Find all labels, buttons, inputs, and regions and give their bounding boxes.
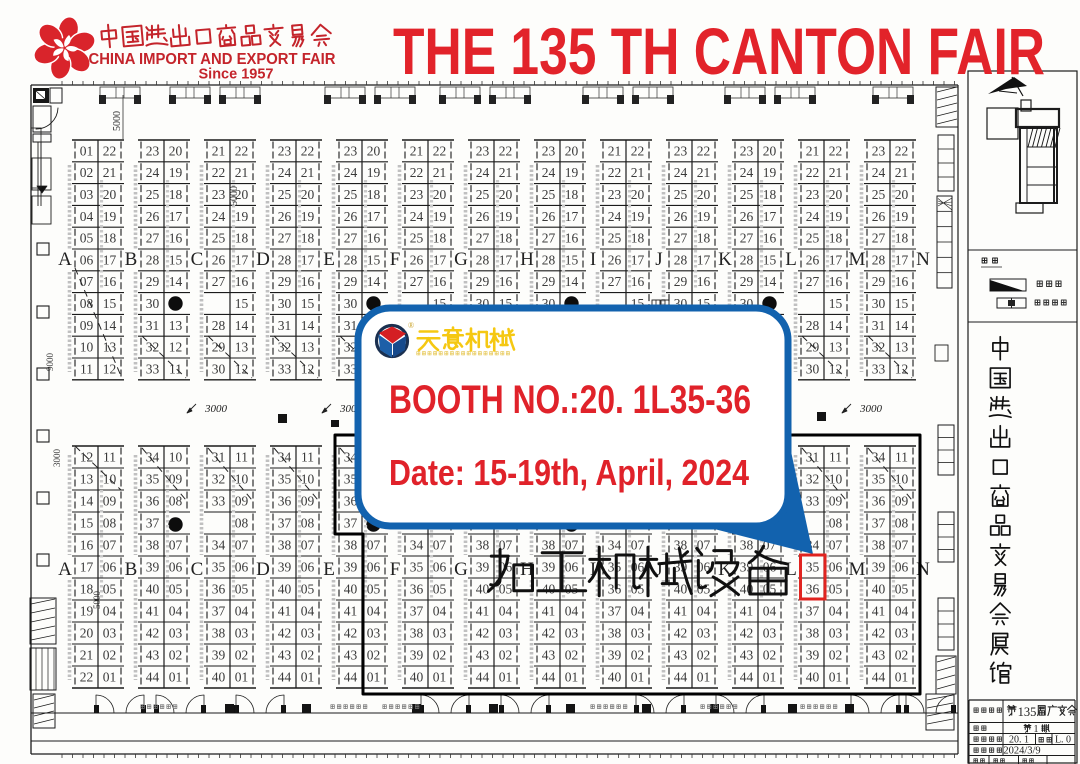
svg-text:24: 24 xyxy=(476,165,490,180)
svg-text:33: 33 xyxy=(146,361,160,376)
svg-text:20: 20 xyxy=(697,187,711,202)
svg-text:E: E xyxy=(323,249,335,270)
svg-text:40: 40 xyxy=(806,670,820,685)
svg-text:08: 08 xyxy=(80,296,94,311)
svg-text:21: 21 xyxy=(80,648,94,663)
svg-text:42: 42 xyxy=(344,626,358,641)
svg-text:25: 25 xyxy=(410,231,424,246)
svg-text:28: 28 xyxy=(278,252,292,267)
svg-text:44: 44 xyxy=(344,670,358,685)
svg-text:09: 09 xyxy=(301,494,315,509)
svg-text:25: 25 xyxy=(146,187,160,202)
svg-text:38: 38 xyxy=(608,626,622,641)
svg-text:23: 23 xyxy=(476,143,490,158)
svg-text:38: 38 xyxy=(212,626,226,641)
svg-text:01: 01 xyxy=(80,143,94,158)
svg-text:24: 24 xyxy=(542,165,556,180)
svg-text:10: 10 xyxy=(829,472,843,487)
svg-text:01: 01 xyxy=(301,670,315,685)
svg-text:30: 30 xyxy=(212,361,226,376)
svg-text:29: 29 xyxy=(344,274,358,289)
svg-text:B: B xyxy=(125,249,138,270)
svg-text:21: 21 xyxy=(212,143,226,158)
svg-text:39: 39 xyxy=(872,560,886,575)
svg-text:09: 09 xyxy=(895,494,909,509)
svg-text:42: 42 xyxy=(542,626,556,641)
svg-text:09: 09 xyxy=(829,494,843,509)
svg-text:14: 14 xyxy=(103,318,117,333)
svg-text:06: 06 xyxy=(433,560,447,575)
svg-text:31: 31 xyxy=(344,318,358,333)
svg-text:27: 27 xyxy=(806,274,820,289)
svg-text:06: 06 xyxy=(235,560,249,575)
svg-text:34: 34 xyxy=(212,538,226,553)
svg-text:25: 25 xyxy=(806,231,820,246)
svg-text:21: 21 xyxy=(608,143,622,158)
svg-text:44: 44 xyxy=(278,670,292,685)
svg-text:44: 44 xyxy=(542,670,556,685)
svg-text:17: 17 xyxy=(565,209,579,224)
svg-text:06: 06 xyxy=(895,560,909,575)
svg-text:27: 27 xyxy=(410,274,424,289)
svg-text:39: 39 xyxy=(344,560,358,575)
svg-text:15: 15 xyxy=(895,296,909,311)
svg-text:17: 17 xyxy=(631,252,645,267)
svg-text:C: C xyxy=(191,249,204,270)
svg-text:18: 18 xyxy=(499,231,513,246)
svg-text:05: 05 xyxy=(433,582,447,597)
svg-text:24: 24 xyxy=(872,165,886,180)
svg-text:41: 41 xyxy=(740,604,754,619)
svg-text:01: 01 xyxy=(499,670,513,685)
svg-text:31: 31 xyxy=(278,318,292,333)
svg-text:07: 07 xyxy=(565,538,579,553)
svg-text:29: 29 xyxy=(740,274,754,289)
svg-text:20. 1: 20. 1 xyxy=(1009,735,1029,746)
svg-text:21: 21 xyxy=(235,165,249,180)
svg-text:L: L xyxy=(785,249,797,270)
svg-text:L. 0: L. 0 xyxy=(1055,735,1071,746)
svg-text:15: 15 xyxy=(565,252,579,267)
svg-text:39: 39 xyxy=(278,560,292,575)
svg-text:03: 03 xyxy=(80,187,94,202)
svg-text:03: 03 xyxy=(631,626,645,641)
svg-text:3000: 3000 xyxy=(204,403,228,415)
svg-text:04: 04 xyxy=(103,604,117,619)
svg-text:26: 26 xyxy=(278,209,292,224)
svg-text:G: G xyxy=(454,249,468,270)
svg-text:K: K xyxy=(718,249,732,270)
svg-text:14: 14 xyxy=(829,318,843,333)
svg-text:17: 17 xyxy=(235,252,249,267)
svg-text:42: 42 xyxy=(674,626,688,641)
svg-text:43: 43 xyxy=(344,648,358,663)
svg-text:43: 43 xyxy=(740,648,754,663)
svg-text:13: 13 xyxy=(895,340,909,355)
svg-text:26: 26 xyxy=(542,209,556,224)
svg-text:23: 23 xyxy=(608,187,622,202)
svg-text:06: 06 xyxy=(301,560,315,575)
svg-text:05: 05 xyxy=(169,582,183,597)
svg-text:18: 18 xyxy=(301,231,315,246)
svg-text:08: 08 xyxy=(895,516,909,531)
svg-text:37: 37 xyxy=(410,604,424,619)
svg-text:14: 14 xyxy=(169,274,183,289)
svg-text:43: 43 xyxy=(872,648,886,663)
svg-text:25: 25 xyxy=(872,187,886,202)
svg-text:01: 01 xyxy=(367,670,381,685)
svg-text:36: 36 xyxy=(410,582,424,597)
svg-text:15: 15 xyxy=(103,296,117,311)
svg-text:24: 24 xyxy=(212,209,226,224)
svg-text:43: 43 xyxy=(674,648,688,663)
svg-text:21: 21 xyxy=(103,165,117,180)
svg-text:36: 36 xyxy=(146,494,160,509)
svg-text:02: 02 xyxy=(565,648,579,663)
svg-text:09: 09 xyxy=(103,494,117,509)
svg-text:13: 13 xyxy=(235,340,249,355)
svg-text:A: A xyxy=(58,559,72,580)
svg-text:44: 44 xyxy=(674,670,688,685)
svg-text:14: 14 xyxy=(895,318,909,333)
svg-text:07: 07 xyxy=(631,538,645,553)
svg-text:39: 39 xyxy=(146,560,160,575)
svg-text:02: 02 xyxy=(829,648,843,663)
svg-text:19: 19 xyxy=(301,209,315,224)
svg-text:35: 35 xyxy=(278,472,292,487)
svg-text:16: 16 xyxy=(697,274,711,289)
svg-text:03: 03 xyxy=(829,626,843,641)
svg-text:27: 27 xyxy=(146,231,160,246)
svg-text:F: F xyxy=(390,249,401,270)
svg-text:32: 32 xyxy=(872,340,886,355)
svg-text:07: 07 xyxy=(829,538,843,553)
svg-text:14: 14 xyxy=(235,318,249,333)
svg-text:15: 15 xyxy=(169,252,183,267)
svg-text:18: 18 xyxy=(895,231,909,246)
svg-text:29: 29 xyxy=(542,274,556,289)
svg-text:20: 20 xyxy=(499,187,513,202)
svg-text:30: 30 xyxy=(344,296,358,311)
svg-text:24: 24 xyxy=(344,165,358,180)
svg-text:19: 19 xyxy=(169,165,183,180)
svg-text:04: 04 xyxy=(169,604,183,619)
svg-text:2024/3/9: 2024/3/9 xyxy=(1003,746,1040,757)
svg-text:14: 14 xyxy=(80,494,94,509)
svg-text:33: 33 xyxy=(212,494,226,509)
svg-text:06: 06 xyxy=(367,560,381,575)
svg-text:20: 20 xyxy=(565,143,579,158)
svg-text:04: 04 xyxy=(895,604,909,619)
svg-text:15: 15 xyxy=(367,252,381,267)
svg-text:28: 28 xyxy=(872,252,886,267)
svg-text:17: 17 xyxy=(80,560,94,575)
svg-text:17: 17 xyxy=(169,209,183,224)
svg-text:11: 11 xyxy=(80,361,93,376)
svg-text:34: 34 xyxy=(872,450,886,465)
svg-text:37: 37 xyxy=(608,604,622,619)
svg-text:04: 04 xyxy=(80,209,94,224)
svg-text:25: 25 xyxy=(278,187,292,202)
svg-text:32: 32 xyxy=(278,340,292,355)
svg-text:26: 26 xyxy=(410,252,424,267)
svg-text:22: 22 xyxy=(499,143,513,158)
svg-text:31: 31 xyxy=(146,318,160,333)
svg-text:13: 13 xyxy=(829,340,843,355)
svg-text:08: 08 xyxy=(301,516,315,531)
svg-text:08: 08 xyxy=(235,516,249,531)
svg-text:30: 30 xyxy=(278,296,292,311)
svg-text:28: 28 xyxy=(542,252,556,267)
svg-text:32: 32 xyxy=(146,340,160,355)
svg-text:24: 24 xyxy=(608,209,622,224)
svg-text:01: 01 xyxy=(829,670,843,685)
svg-text:21: 21 xyxy=(697,165,711,180)
svg-text:19: 19 xyxy=(829,209,843,224)
svg-text:33: 33 xyxy=(872,361,886,376)
svg-text:28: 28 xyxy=(740,252,754,267)
svg-text:06: 06 xyxy=(565,560,579,575)
svg-text:19: 19 xyxy=(235,209,249,224)
svg-text:23: 23 xyxy=(344,143,358,158)
svg-text:D: D xyxy=(256,249,270,270)
svg-text:11: 11 xyxy=(301,450,314,465)
svg-text:13: 13 xyxy=(169,318,183,333)
svg-text:11: 11 xyxy=(103,450,116,465)
svg-text:19: 19 xyxy=(631,209,645,224)
svg-text:07: 07 xyxy=(169,538,183,553)
svg-text:05: 05 xyxy=(895,582,909,597)
svg-text:22: 22 xyxy=(410,165,424,180)
svg-text:23: 23 xyxy=(212,187,226,202)
svg-text:21: 21 xyxy=(806,143,820,158)
svg-text:20: 20 xyxy=(763,143,777,158)
svg-text:36: 36 xyxy=(278,494,292,509)
svg-text:25: 25 xyxy=(212,231,226,246)
svg-text:26: 26 xyxy=(674,209,688,224)
svg-text:25: 25 xyxy=(740,187,754,202)
svg-text:16: 16 xyxy=(895,274,909,289)
svg-text:04: 04 xyxy=(631,604,645,619)
svg-text:41: 41 xyxy=(674,604,688,619)
svg-text:22: 22 xyxy=(80,670,94,685)
svg-text:N: N xyxy=(916,559,930,580)
svg-text:38: 38 xyxy=(410,626,424,641)
svg-text:07: 07 xyxy=(895,538,909,553)
svg-text:37: 37 xyxy=(146,516,160,531)
svg-text:16: 16 xyxy=(565,231,579,246)
svg-text:37: 37 xyxy=(872,516,886,531)
svg-text:33: 33 xyxy=(806,494,820,509)
svg-text:Since 1957: Since 1957 xyxy=(199,67,274,83)
svg-text:13: 13 xyxy=(103,340,117,355)
svg-text:24: 24 xyxy=(740,165,754,180)
svg-text:03: 03 xyxy=(103,626,117,641)
svg-text:41: 41 xyxy=(542,604,556,619)
svg-text:04: 04 xyxy=(697,604,711,619)
svg-text:26: 26 xyxy=(146,209,160,224)
svg-text:18: 18 xyxy=(631,231,645,246)
svg-text:35: 35 xyxy=(146,472,160,487)
svg-text:40: 40 xyxy=(542,582,556,597)
svg-text:D: D xyxy=(256,559,270,580)
svg-text:09: 09 xyxy=(235,494,249,509)
svg-text:33: 33 xyxy=(278,361,292,376)
svg-text:28: 28 xyxy=(476,252,490,267)
svg-text:12: 12 xyxy=(169,340,183,355)
svg-text:27: 27 xyxy=(278,231,292,246)
svg-text:21: 21 xyxy=(301,165,315,180)
svg-text:31: 31 xyxy=(212,450,226,465)
svg-text:43: 43 xyxy=(146,648,160,663)
svg-text:20: 20 xyxy=(80,626,94,641)
svg-text:03: 03 xyxy=(301,626,315,641)
svg-text:03: 03 xyxy=(565,626,579,641)
svg-text:28: 28 xyxy=(344,252,358,267)
svg-text:25: 25 xyxy=(476,187,490,202)
svg-text:05: 05 xyxy=(235,582,249,597)
svg-text:41: 41 xyxy=(344,604,358,619)
svg-text:14: 14 xyxy=(301,318,315,333)
svg-text:C: C xyxy=(191,559,204,580)
svg-text:17: 17 xyxy=(763,209,777,224)
svg-text:26: 26 xyxy=(740,209,754,224)
svg-text:44: 44 xyxy=(476,670,490,685)
svg-text:34: 34 xyxy=(410,538,424,553)
svg-text:38: 38 xyxy=(740,538,754,553)
svg-text:38: 38 xyxy=(344,538,358,553)
svg-text:06: 06 xyxy=(103,560,117,575)
svg-text:20: 20 xyxy=(895,187,909,202)
svg-text:21: 21 xyxy=(631,165,645,180)
svg-text:07: 07 xyxy=(301,538,315,553)
svg-text:25: 25 xyxy=(608,231,622,246)
svg-text:01: 01 xyxy=(895,670,909,685)
svg-text:01: 01 xyxy=(235,670,249,685)
svg-text:01: 01 xyxy=(565,670,579,685)
svg-text:40: 40 xyxy=(278,582,292,597)
svg-text:39: 39 xyxy=(212,648,226,663)
svg-text:F: F xyxy=(390,559,401,580)
svg-text:M: M xyxy=(849,249,866,270)
svg-text:A: A xyxy=(58,249,72,270)
svg-text:H: H xyxy=(520,249,534,270)
svg-text:I: I xyxy=(590,249,596,270)
svg-text:1: 1 xyxy=(1034,724,1039,735)
svg-text:34: 34 xyxy=(146,450,160,465)
svg-text:05: 05 xyxy=(499,582,513,597)
svg-text:44: 44 xyxy=(146,670,160,685)
svg-text:10: 10 xyxy=(895,472,909,487)
svg-text:18: 18 xyxy=(235,231,249,246)
svg-text:26: 26 xyxy=(806,252,820,267)
svg-text:19: 19 xyxy=(433,209,447,224)
svg-text:35: 35 xyxy=(806,560,820,575)
svg-text:39: 39 xyxy=(476,560,490,575)
svg-text:05: 05 xyxy=(367,582,381,597)
svg-text:22: 22 xyxy=(301,143,315,158)
svg-text:26: 26 xyxy=(344,209,358,224)
svg-text:02: 02 xyxy=(499,648,513,663)
svg-text:41: 41 xyxy=(146,604,160,619)
svg-text:37: 37 xyxy=(278,516,292,531)
svg-text:28: 28 xyxy=(146,252,160,267)
svg-text:J: J xyxy=(655,249,662,270)
svg-text:03: 03 xyxy=(169,626,183,641)
svg-text:04: 04 xyxy=(433,604,447,619)
svg-text:28: 28 xyxy=(806,318,820,333)
svg-text:19: 19 xyxy=(763,165,777,180)
svg-text:20: 20 xyxy=(433,187,447,202)
svg-text:23: 23 xyxy=(806,187,820,202)
svg-text:26: 26 xyxy=(212,252,226,267)
svg-text:27: 27 xyxy=(674,231,688,246)
svg-text:3000: 3000 xyxy=(859,403,883,415)
svg-text:01: 01 xyxy=(103,670,117,685)
svg-text:02: 02 xyxy=(367,648,381,663)
svg-text:11: 11 xyxy=(829,450,842,465)
svg-text:29: 29 xyxy=(806,340,820,355)
svg-text:16: 16 xyxy=(235,274,249,289)
svg-text:02: 02 xyxy=(103,648,117,663)
svg-text:43: 43 xyxy=(542,648,556,663)
svg-text:03: 03 xyxy=(235,626,249,641)
svg-text:03: 03 xyxy=(433,626,447,641)
svg-text:24: 24 xyxy=(410,209,424,224)
svg-text:20: 20 xyxy=(631,187,645,202)
svg-text:14: 14 xyxy=(565,274,579,289)
svg-text:02: 02 xyxy=(895,648,909,663)
svg-text:17: 17 xyxy=(697,252,711,267)
svg-text:26: 26 xyxy=(476,209,490,224)
svg-text:20: 20 xyxy=(169,143,183,158)
svg-text:02: 02 xyxy=(169,648,183,663)
svg-text:16: 16 xyxy=(631,274,645,289)
svg-text:37: 37 xyxy=(806,604,820,619)
svg-text:22: 22 xyxy=(103,143,117,158)
svg-text:17: 17 xyxy=(499,252,513,267)
svg-text:40: 40 xyxy=(608,670,622,685)
svg-text:26: 26 xyxy=(872,209,886,224)
svg-text:39: 39 xyxy=(410,648,424,663)
svg-text:26: 26 xyxy=(608,252,622,267)
svg-text:27: 27 xyxy=(740,231,754,246)
svg-text:5000: 5000 xyxy=(92,591,102,610)
svg-text:29: 29 xyxy=(872,274,886,289)
svg-text:18: 18 xyxy=(367,187,381,202)
svg-text:®: ® xyxy=(408,321,414,330)
svg-text:03: 03 xyxy=(367,626,381,641)
svg-text:03: 03 xyxy=(763,626,777,641)
svg-text:13: 13 xyxy=(80,472,94,487)
svg-text:35: 35 xyxy=(212,560,226,575)
svg-text:04: 04 xyxy=(565,604,579,619)
svg-text:24: 24 xyxy=(278,165,292,180)
svg-text:35: 35 xyxy=(410,560,424,575)
svg-text:16: 16 xyxy=(829,274,843,289)
svg-text:07: 07 xyxy=(433,538,447,553)
svg-text:25: 25 xyxy=(344,187,358,202)
svg-text:36: 36 xyxy=(872,494,886,509)
svg-text:01: 01 xyxy=(763,670,777,685)
svg-text:22: 22 xyxy=(608,165,622,180)
svg-text:20: 20 xyxy=(103,187,117,202)
svg-text:02: 02 xyxy=(235,648,249,663)
svg-text:19: 19 xyxy=(103,209,117,224)
svg-text:23: 23 xyxy=(278,143,292,158)
svg-text:39: 39 xyxy=(806,648,820,663)
svg-text:08: 08 xyxy=(829,516,843,531)
